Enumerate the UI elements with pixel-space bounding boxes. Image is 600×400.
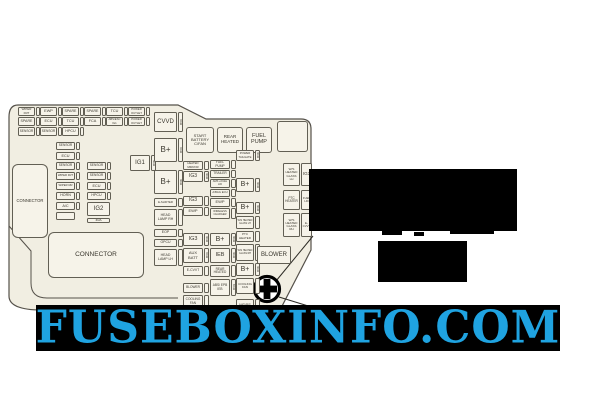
fuse-ig3: IG340A [183, 233, 209, 246]
fuse-b+: B+40A [236, 178, 260, 192]
fuse-wiper-rr: WIPER RR [56, 182, 80, 190]
fuse-label: START BATTERY C/FAN [190, 134, 209, 147]
amp-rating [76, 182, 80, 190]
amp-rating [76, 152, 80, 160]
fuse-ig1: IG140A [130, 155, 156, 171]
fuse-ewp: EWP [40, 107, 62, 116]
amp-rating [80, 127, 84, 136]
fuse-label: ABS/ESC IG1 [107, 118, 122, 124]
amp-rating [107, 192, 111, 200]
fuse-40a: 40A [87, 218, 110, 223]
fuse-label: CONNECTOR [16, 199, 44, 204]
fuse-label: B+ [240, 204, 250, 212]
fuse-label: HEAD LAMP RH [155, 214, 176, 222]
amp-rating: 50A [204, 248, 209, 263]
fuse-ecu: ECU [40, 117, 62, 126]
amp-rating: 50A [178, 112, 183, 132]
fuse-w-s-heated-glass-lh: W/S HEATED GLASS LH [236, 216, 260, 229]
fuse-label: COOLING FAN [237, 283, 253, 289]
fuse-ecu: ECU [87, 182, 111, 190]
amp-rating [76, 172, 80, 180]
fuse-label: W/S HEATED GLASS LH [237, 220, 253, 225]
fuse-label: REAR HEATED [211, 268, 229, 275]
amp-rating: 40A [204, 171, 209, 182]
fuse-label: B+ [240, 266, 250, 274]
fuse-hpcu: HPCU [62, 127, 84, 136]
fuse-label: OPCU [160, 241, 171, 245]
amp-rating [204, 196, 209, 206]
fuse-label: ABS/ EPB IEB [211, 284, 229, 291]
fuse-aux-batt: AUX BATT50A [183, 248, 209, 263]
fuse-label: WIPER FRT [57, 174, 73, 177]
amp-rating: 40A [255, 150, 260, 161]
fuse-spare: SPARE [62, 107, 84, 116]
fuse-ieb: IEB40A [210, 248, 236, 263]
fuse-label: SENSOR [41, 130, 55, 133]
fuse-label: BLOWER [186, 286, 201, 289]
fuse-ig3: IG340A [183, 171, 209, 182]
fuse-sensor: SENSOR [87, 162, 111, 170]
amp-rating: 50A [178, 138, 183, 162]
redaction-block [382, 229, 402, 235]
screenshot-canvas: CONNECTORCONNECTORSTART BATTERY C/FANREA… [0, 0, 600, 400]
fuse-label: POWER OUTLET [129, 108, 144, 114]
fuse-label: AUX BATT [184, 251, 202, 260]
fuse-b+: B+40A [236, 263, 260, 276]
fuse-label: SENSOR [58, 164, 72, 167]
fuse-blower: BLOWER [257, 246, 291, 264]
fuse-a-c: A/C [56, 202, 80, 210]
fuse-label: AMS +FUEL LID [211, 181, 229, 187]
fuse-sensor: SENSOR [18, 127, 40, 136]
amp-rating [255, 231, 260, 242]
fuse-label: ECU [44, 119, 53, 123]
fuse-label: HEAD LAMP LH [155, 254, 176, 262]
amp-rating [76, 162, 80, 170]
fuse-cooling-fan: COOLING FAN [236, 278, 260, 294]
fuse-label: SPARE [20, 120, 33, 124]
fuse-blank [56, 212, 75, 220]
fuse-sensor: SENSOR [87, 172, 111, 180]
fuse-label: WIPER FRT [19, 108, 34, 114]
fuse-label: SPARE [64, 110, 77, 114]
fuse-label: TCU [110, 109, 119, 113]
fuse-label: B+ [215, 236, 225, 244]
fuse-label: B+ [240, 181, 250, 189]
fuse-rear-heated: REAR HEATED [210, 265, 236, 277]
amp-rating [107, 182, 111, 190]
fuse-label: EOP [161, 231, 169, 235]
amp-rating [76, 202, 80, 210]
watermark-text: FUSEBOXINFO.COM [36, 306, 561, 351]
fuse-label: A/BAG ECU [212, 191, 228, 194]
fuse-sensor: SENSOR [56, 162, 80, 170]
fuse-label: IG1 [135, 160, 146, 166]
amp-rating [204, 266, 209, 276]
fuse-label: SENSOR [89, 174, 103, 177]
fuse-label: WIRELESS CHARGER [211, 211, 229, 217]
fuse-label: IG3 [188, 237, 198, 243]
fuse-label: FUEL PUMP [251, 134, 268, 146]
amp-rating [146, 107, 150, 116]
fuse-a-bag-ecu: A/BAG ECU [210, 189, 236, 197]
fuse-label: HEATED MIRROR [184, 162, 202, 168]
fuse-label: REAR HEATED [221, 135, 240, 145]
fuse-fca: FCA [84, 117, 106, 126]
fuse-blank [277, 121, 308, 152]
fuse-label: IG3 [188, 174, 197, 179]
fuse-eop: EOP [154, 229, 183, 237]
fuse-fuel-pump: FUEL PUMP [210, 160, 236, 169]
fuse-label: IG3 [188, 198, 197, 203]
amp-rating: 40A [255, 202, 260, 214]
fuse-ptc-heater: PTC HEATER [283, 190, 300, 210]
fuse-ewp: EWP [210, 198, 236, 207]
amp-rating [204, 161, 209, 170]
fuse-label: IG2 [93, 206, 104, 212]
amp-rating [255, 278, 260, 294]
fuse-label: HPCU [91, 194, 102, 198]
fuse-ams-+fuel-lid: AMS +FUEL LID [210, 179, 236, 188]
fuse-label: EWP [215, 200, 225, 204]
fuse-ptc-heater: PTC HEATER [236, 231, 260, 242]
fuse-label: W/S HEATED GLASS RH [237, 250, 253, 255]
fuse-label: SPARE [86, 110, 99, 114]
fuse-connector: CONNECTOR [12, 164, 48, 238]
fuse-label: W/S HEATED GLASS RH [284, 219, 299, 232]
fuse-label: POWER OUTLET [129, 118, 144, 124]
fuse-spare: SPARE [18, 117, 40, 126]
fuse-label: EWP [188, 209, 198, 213]
amp-rating [107, 162, 111, 170]
fuse-wiper-frt: WIPER FRT [56, 172, 80, 180]
fuse-head-lamp-lh: HEAD LAMP LH [154, 249, 183, 266]
amp-rating: 40A [204, 233, 209, 246]
fuse-b+: B+40A [236, 202, 260, 214]
redaction-block [414, 232, 424, 236]
fuse-label: B+ [160, 146, 171, 155]
fuse-label: ECU [61, 154, 70, 158]
fuse-wiper-frt: WIPER FRT [18, 107, 40, 116]
amp-rating [231, 170, 236, 178]
amp-rating [107, 172, 111, 180]
amp-rating: 40A [255, 263, 260, 276]
fuse-label: PTC HEATER [284, 197, 299, 204]
fuse-w-s-heated-glass-rh: W/S HEATED GLASS RH [283, 213, 300, 237]
fuse-b+: B+40A [210, 233, 236, 246]
fuse-blower: BLOWER [183, 283, 209, 293]
fuse-label: PTC HEATER [237, 233, 253, 239]
fuse-label: FCA [88, 119, 97, 123]
fuse-label: SENSOR [89, 164, 103, 167]
fuse-sensor: SENSOR [40, 127, 62, 136]
fuse-label: TCU [66, 119, 75, 123]
fuse-spare: SPARE [84, 107, 106, 116]
fuse-b+: B+50A [154, 138, 183, 162]
fuse-label: POWER TAILGATE [237, 152, 253, 158]
fuse-abs-epb-ieb: ABS/ EPB IEB60A [210, 279, 236, 296]
fuse-label: 40A [95, 219, 102, 223]
fuse-e-shifter: E-SHIFTER [154, 198, 183, 207]
fuse-trailer: TRAILER [210, 170, 236, 178]
fuse-connector: CONNECTOR [48, 232, 144, 278]
fuse-tcu: TCU [106, 107, 128, 116]
fuse-heated-mirror: HEATED MIRROR [183, 161, 209, 170]
fuse-label: SENSOR [19, 130, 33, 133]
fuse-label: HORN [60, 194, 72, 198]
fuse-label: BLOWER [260, 252, 287, 258]
fuse-sensor: SENSOR [56, 142, 80, 150]
amp-rating: 40A [255, 178, 260, 192]
fuse-cvvd: CVVD50A [154, 112, 183, 132]
amp-rating [255, 216, 260, 229]
fuse-horn: HORN [56, 192, 80, 200]
redaction-block [309, 169, 517, 231]
fuse-label: A/C [62, 204, 69, 208]
fuse-b+: B+40A [154, 170, 183, 194]
fuse-start-battery-c-fan: START BATTERY C/FAN [186, 127, 214, 153]
redaction-block [378, 241, 467, 282]
redaction-block [450, 226, 494, 234]
fuse-label: CONNECTOR [75, 251, 118, 258]
fuse-label: E-CVVT [186, 269, 199, 273]
fuse-ig2: IG2 [87, 202, 110, 216]
fuse-label: HPCU [65, 130, 76, 134]
fuse-label: IEB [215, 253, 225, 259]
fuse-label: E-SHIFTER [158, 201, 174, 204]
amp-rating [204, 207, 209, 216]
fuse-abs-esc-ig1: ABS/ESC IG1 [106, 117, 128, 126]
fuse-label: EWP [44, 109, 54, 113]
amp-rating [76, 142, 80, 150]
fuse-label: B+ [160, 178, 171, 187]
fuse-power-outlet: POWER OUTLET [128, 107, 150, 116]
fuse-label: ECU [92, 184, 101, 188]
amp-rating [146, 117, 150, 126]
fuse-opcu: OPCU [154, 239, 183, 247]
fuse-label: W/S HEATED GLASS LH [284, 168, 299, 181]
fuse-label: SENSOR [58, 144, 72, 147]
fuse-ecu: ECU [56, 152, 80, 160]
amp-rating [231, 160, 236, 169]
fuse-label: WIPER RR [58, 184, 73, 187]
fuse-label: FUEL PUMP [211, 161, 229, 168]
fuse-e-cvvt: E-CVVT [183, 266, 209, 276]
fuse-ig3: IG3 [183, 196, 209, 206]
fuse-label: CVVD [157, 119, 175, 125]
fuse-ewp: EWP [183, 207, 209, 216]
fuse-power-tailgate: POWER TAILGATE40A [236, 150, 260, 161]
watermark-banner: FUSEBOXINFO.COM [36, 305, 560, 351]
fuse-wireless-charger: WIRELESS CHARGER [210, 208, 236, 219]
fuse-w-s-heated-glass-lh: W/S HEATED GLASS LH [283, 163, 300, 186]
fuse-label: TRAILER [213, 172, 227, 175]
fuse-power-outlet: POWER OUTLET [128, 117, 150, 126]
fuse-tcu: TCU [62, 117, 84, 126]
fuse-head-lamp-rh: HEAD LAMP RH [154, 209, 183, 226]
amp-rating [76, 192, 80, 200]
amp-rating [204, 283, 209, 293]
fuse-hpcu: HPCU [87, 192, 111, 200]
